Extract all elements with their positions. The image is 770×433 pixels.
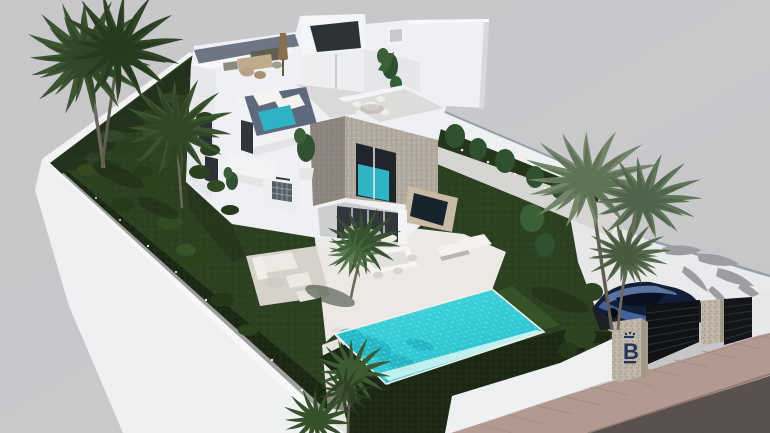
svg-text:B: B	[623, 339, 639, 364]
